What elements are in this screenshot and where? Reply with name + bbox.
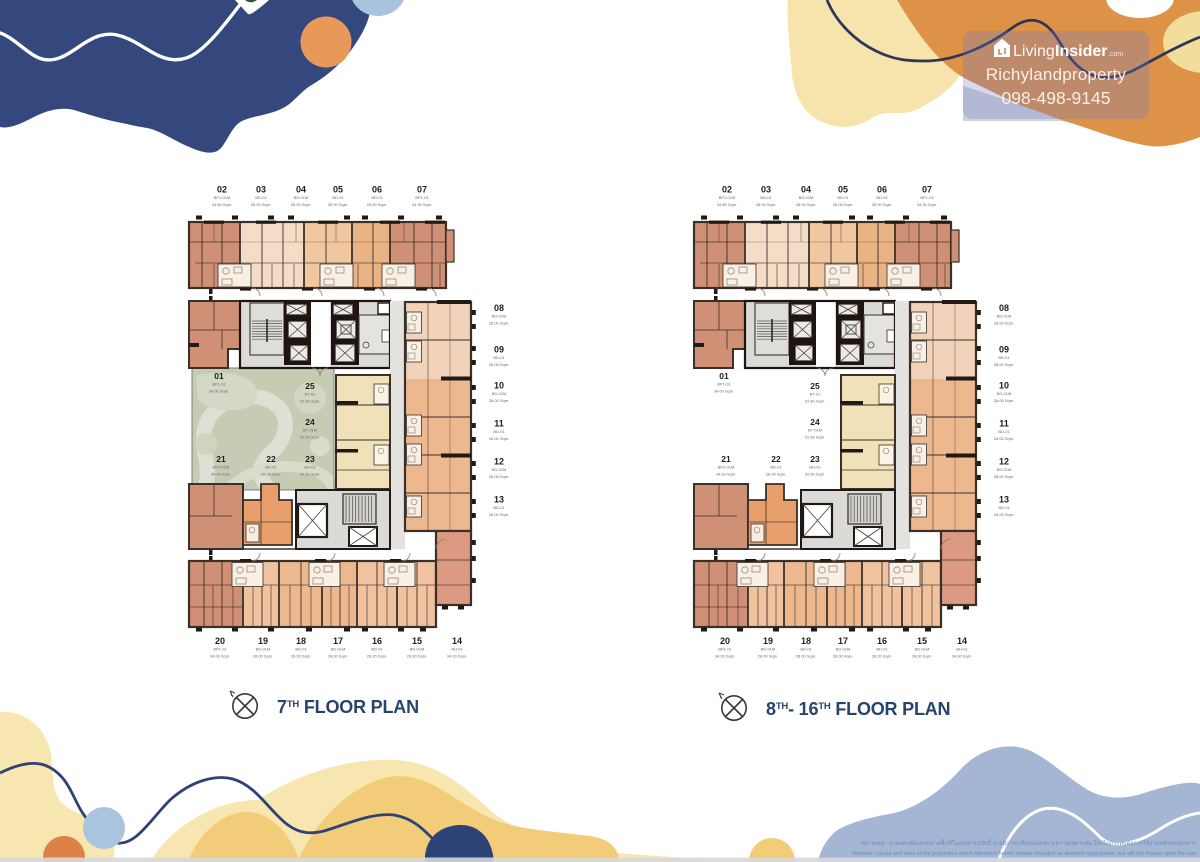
svg-text:Living: Living <box>1013 43 1055 60</box>
svg-text:Richylandproperty: Richylandproperty <box>986 65 1127 84</box>
svg-text:098-498-9145: 098-498-9145 <box>1002 88 1111 108</box>
svg-text:8TH- 16TH FLOOR PLAN: 8TH- 16TH FLOOR PLAN <box>766 699 950 719</box>
svg-text:หมายเหตุ : ภาพแผนผังและขนาดพื้: หมายเหตุ : ภาพแผนผังและขนาดพื้นที่ในเอกส… <box>861 839 1196 847</box>
svg-text:7TH FLOOR PLAN: 7TH FLOOR PLAN <box>277 697 419 717</box>
svg-text:Remark: Layout and area of the: Remark: Layout and area of the propertie… <box>852 851 1196 857</box>
svg-text:.com: .com <box>1108 51 1123 58</box>
svg-text:Insider: Insider <box>1055 43 1107 60</box>
